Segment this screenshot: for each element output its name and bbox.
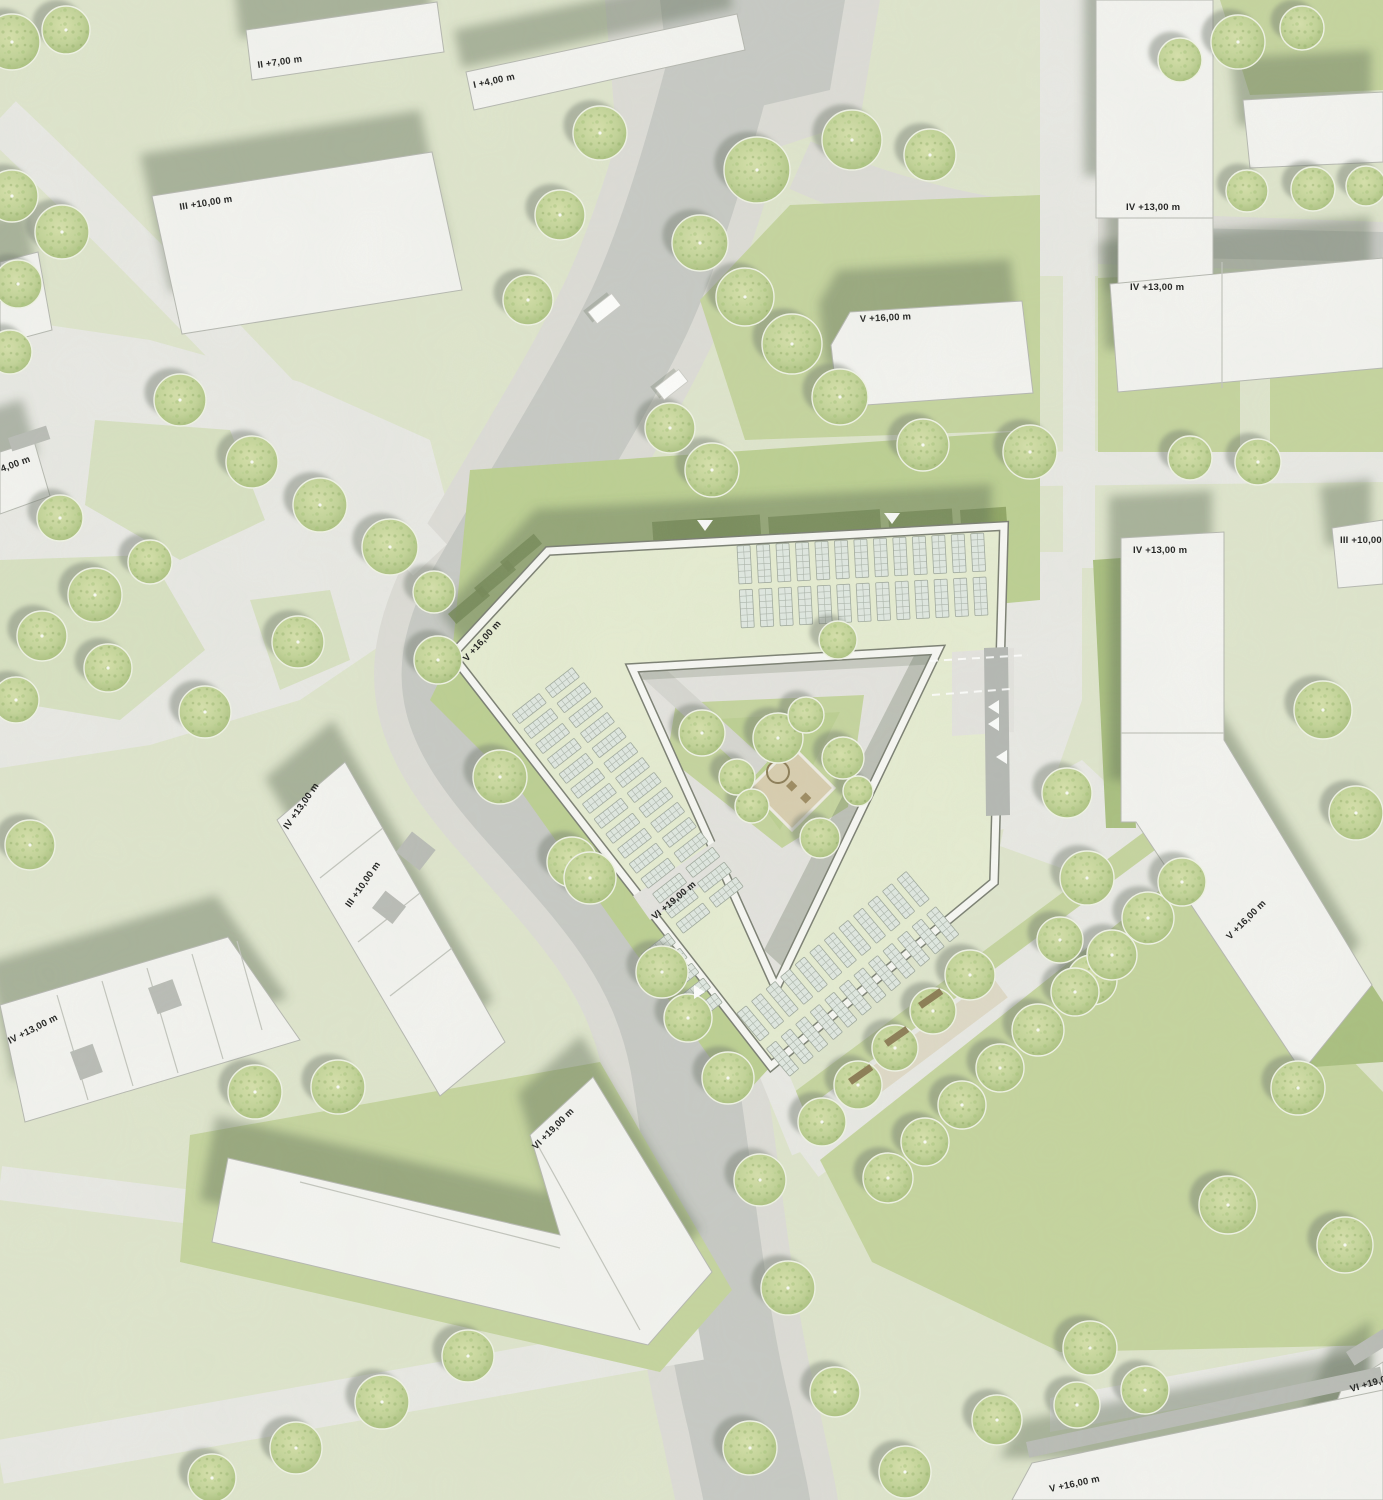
paper-grain [0, 0, 1383, 1500]
site-plan: II +7,00 mI +4,00 mIII +10,00 mIV +13,00… [0, 0, 1383, 1500]
site-plan-canvas: II +7,00 mI +4,00 mIII +10,00 mIV +13,00… [0, 0, 1383, 1500]
